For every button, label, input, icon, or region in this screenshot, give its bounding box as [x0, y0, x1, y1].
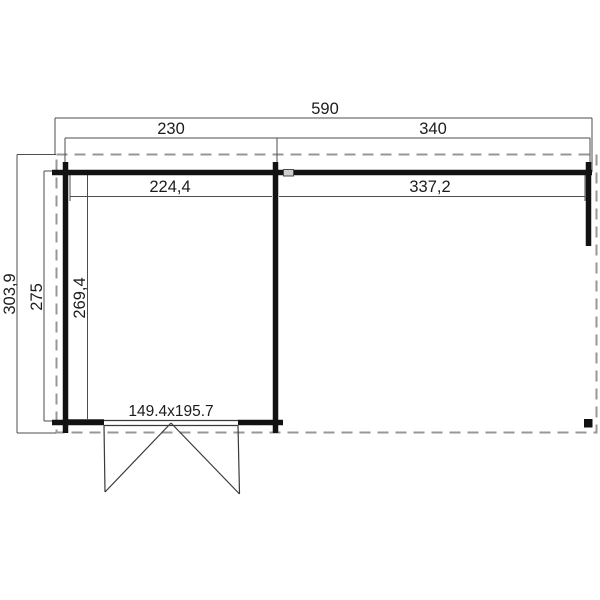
walls	[52, 162, 592, 433]
label-body-depth: 275	[28, 283, 46, 311]
label-right-section-width: 340	[419, 120, 447, 138]
corner-post	[584, 419, 593, 428]
label-roof-depth: 303,9	[1, 273, 19, 314]
floor-plan-drawing: 590 230 340 224,4 337,2 303,9 275 269,4 …	[0, 0, 600, 600]
door-leaf-left-edge	[104, 426, 105, 493]
wall-connector-detail	[284, 170, 294, 177]
label-door-size: 149.4x195.7	[128, 403, 213, 420]
label-inner-depth: 269,4	[71, 277, 89, 318]
dimension-lines	[17, 118, 592, 433]
door-leaf-right-edge	[238, 426, 240, 495]
label-overall-width: 590	[311, 100, 339, 118]
dimension-labels: 590 230 340 224,4 337,2 303,9 275 269,4 …	[1, 100, 451, 420]
floor-plan-canvas: 590 230 340 224,4 337,2 303,9 275 269,4 …	[0, 0, 600, 600]
door-leaf-right-swing	[171, 423, 240, 494]
label-left-section-width: 230	[157, 120, 185, 138]
label-right-inner-width: 337,2	[409, 178, 450, 196]
label-left-inner-width: 224,4	[149, 178, 190, 196]
